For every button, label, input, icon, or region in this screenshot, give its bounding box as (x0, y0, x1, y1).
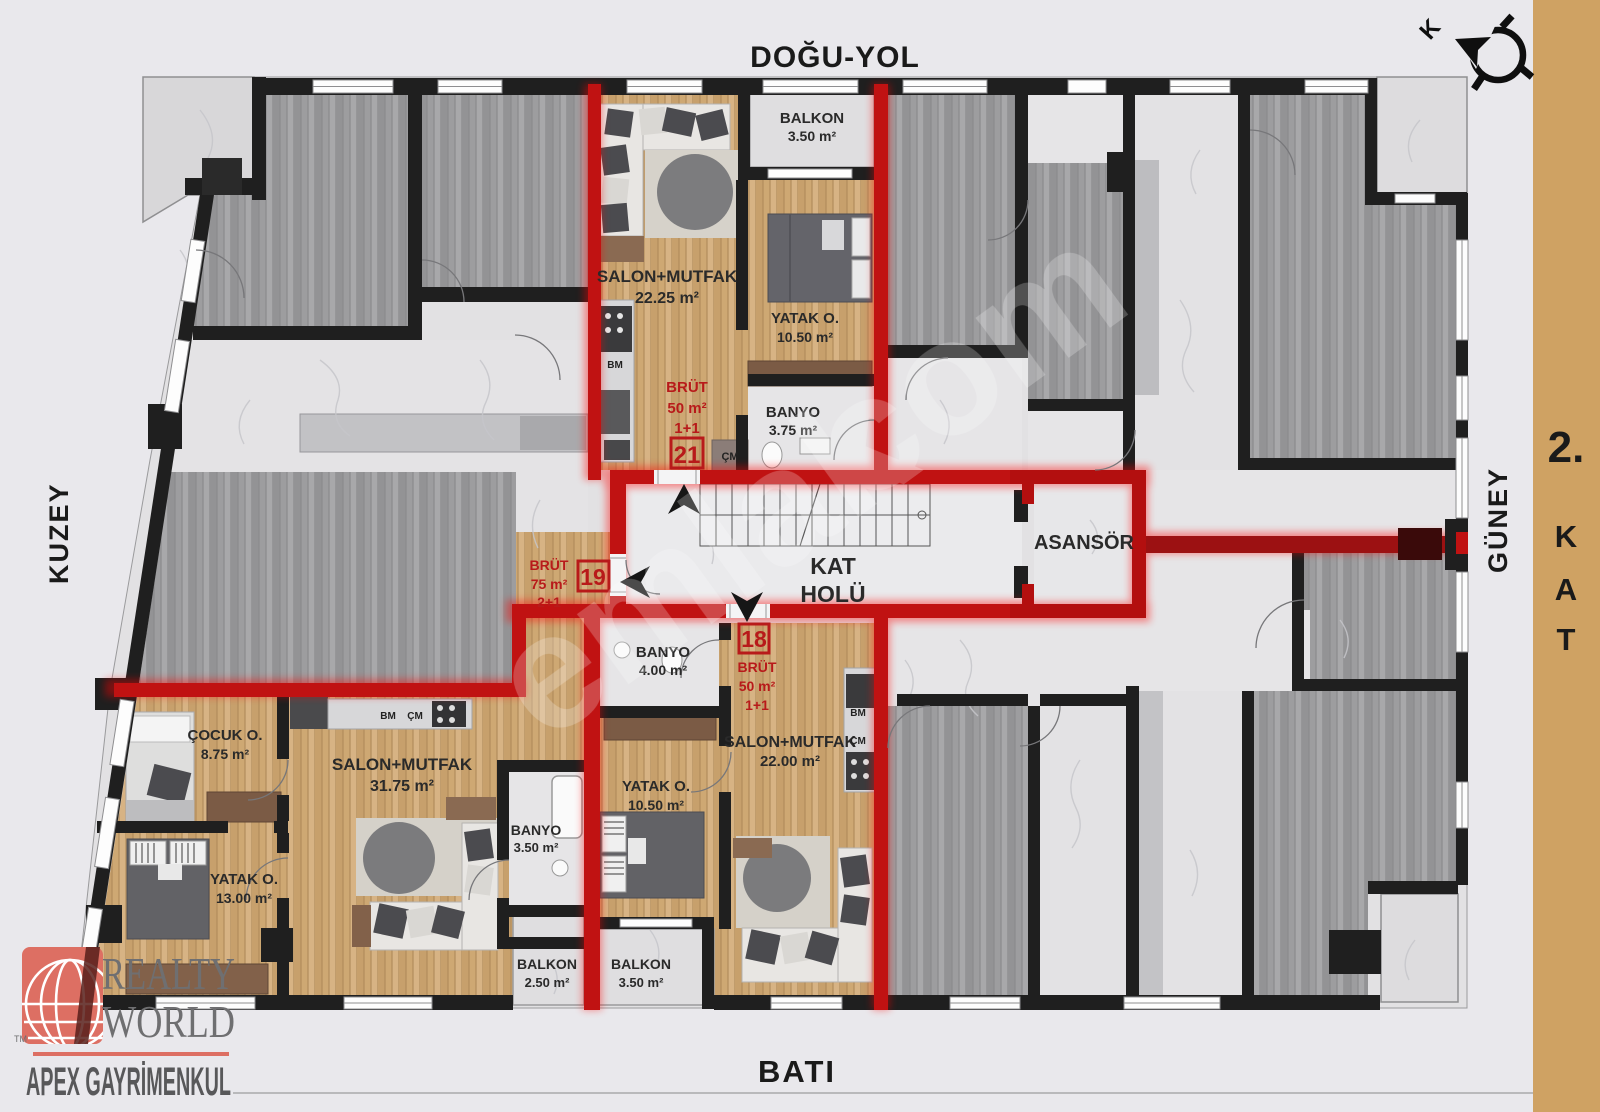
svg-text:BALKON: BALKON (517, 956, 577, 972)
svg-text:BATI: BATI (758, 1054, 836, 1089)
svg-text:BRÜT: BRÜT (666, 379, 708, 396)
svg-text:10.50 m²: 10.50 m² (628, 797, 684, 813)
svg-text:YATAK O.: YATAK O. (771, 310, 839, 327)
svg-text:BANYO: BANYO (511, 822, 562, 838)
svg-text:K: K (1555, 519, 1578, 554)
svg-text:BRÜT: BRÜT (738, 659, 777, 675)
svg-text:ASANSÖR: ASANSÖR (1034, 531, 1135, 554)
svg-text:31.75 m²: 31.75 m² (370, 778, 434, 795)
svg-text:WORLD: WORLD (102, 996, 235, 1047)
svg-text:BM: BM (380, 711, 396, 722)
svg-text:13.00 m²: 13.00 m² (216, 890, 272, 906)
svg-text:DOĞU-YOL: DOĞU-YOL (750, 40, 920, 74)
svg-text:YATAK O.: YATAK O. (210, 871, 278, 888)
svg-text:SALON+MUTFAK: SALON+MUTFAK (332, 755, 473, 774)
svg-text:2.: 2. (1548, 423, 1585, 472)
svg-text:10.50 m²: 10.50 m² (777, 329, 833, 345)
svg-text:GÜNEY: GÜNEY (1483, 467, 1513, 573)
svg-text:3.50 m²: 3.50 m² (788, 128, 837, 144)
svg-text:3.50 m²: 3.50 m² (514, 840, 559, 855)
svg-text:2.50 m²: 2.50 m² (525, 975, 570, 990)
svg-text:1+1: 1+1 (745, 697, 769, 713)
svg-text:3.50 m²: 3.50 m² (619, 975, 664, 990)
svg-text:50 m²: 50 m² (667, 400, 706, 417)
svg-text:ÇM: ÇM (407, 711, 423, 722)
svg-text:YATAK O.: YATAK O. (622, 778, 690, 795)
svg-text:50 m²: 50 m² (739, 678, 776, 694)
svg-text:8.75 m²: 8.75 m² (201, 746, 250, 762)
svg-text:BM: BM (850, 708, 866, 719)
svg-text:BALKON: BALKON (780, 110, 844, 127)
svg-text:A: A (1555, 572, 1577, 607)
svg-text:22.25 m²: 22.25 m² (635, 290, 699, 307)
svg-text:T: T (1557, 622, 1576, 657)
svg-text:SALON+MUTFAK: SALON+MUTFAK (724, 734, 856, 751)
svg-text:TM: TM (14, 1034, 27, 1044)
svg-text:SALON+MUTFAK: SALON+MUTFAK (597, 267, 738, 286)
svg-text:1+1: 1+1 (674, 420, 699, 437)
svg-text:KUZEY: KUZEY (44, 482, 74, 584)
svg-text:ÇOCUK O.: ÇOCUK O. (188, 727, 263, 744)
svg-text:22.00 m²: 22.00 m² (760, 753, 820, 770)
svg-text:BM: BM (607, 360, 623, 371)
svg-text:APEX GAYRİMENKUL: APEX GAYRİMENKUL (26, 1060, 231, 1104)
svg-text:BALKON: BALKON (611, 956, 671, 972)
svg-text:REALTY: REALTY (102, 948, 235, 999)
svg-text:ÇM: ÇM (850, 736, 866, 747)
